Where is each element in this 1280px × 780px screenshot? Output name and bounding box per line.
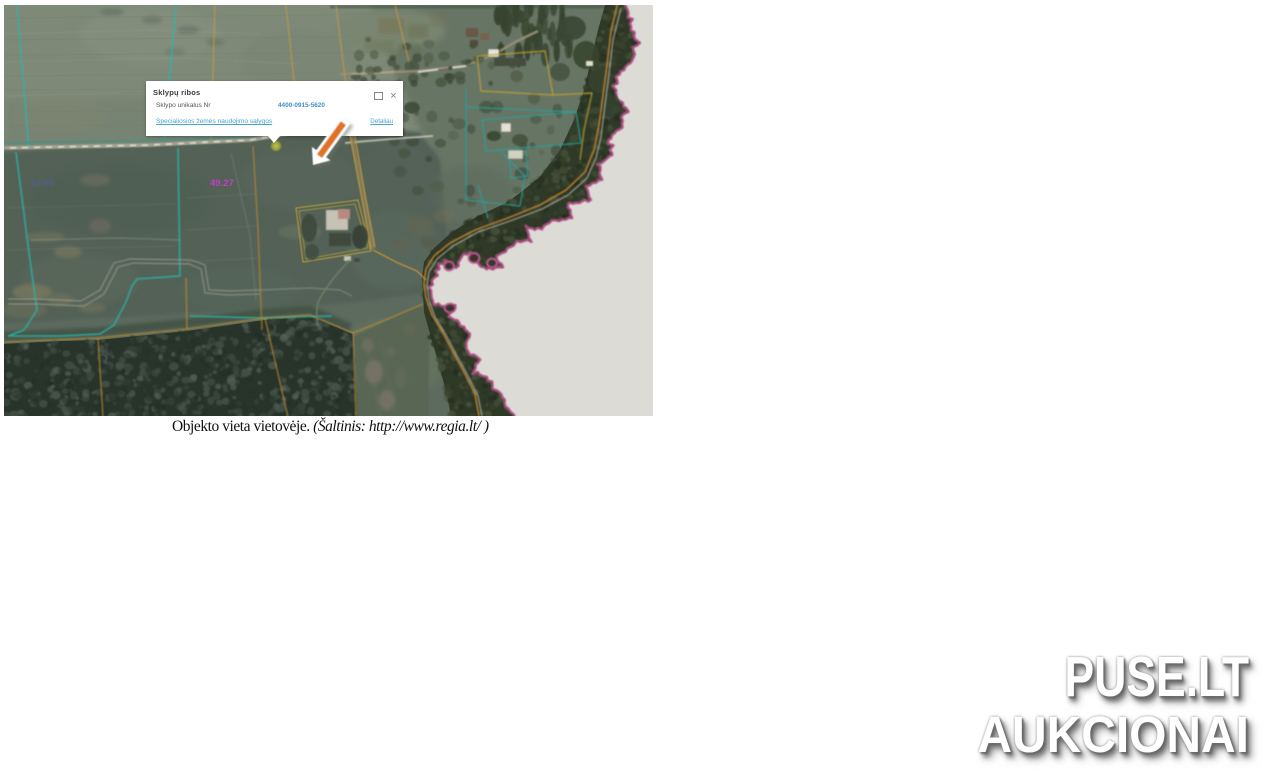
svg-text:49.27: 49.27 — [210, 178, 234, 189]
svg-text:43.69: 43.69 — [30, 178, 54, 189]
